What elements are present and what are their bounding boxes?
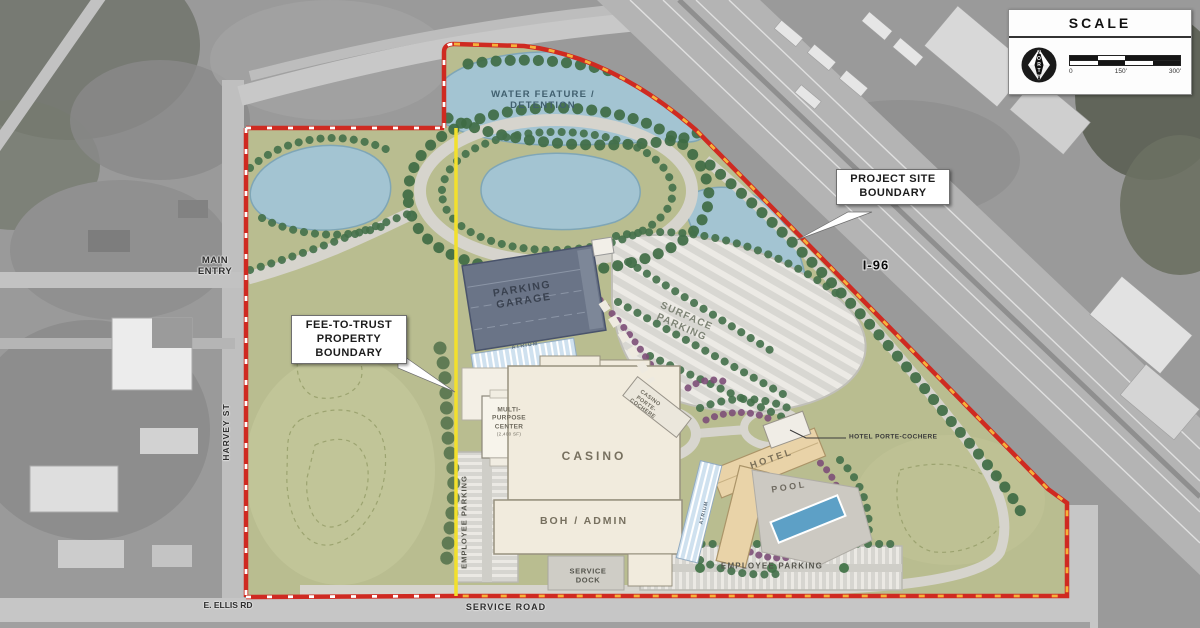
harvey-st-road	[222, 80, 244, 628]
scale-tick-0: 0	[1069, 68, 1073, 75]
scale-tick-300: 300'	[1169, 68, 1181, 75]
e-ellis-road	[0, 598, 1090, 624]
scale-panel: SCALE NORTH 0 150' 300'	[1008, 9, 1192, 95]
north-arrow-icon: NORTH	[1019, 45, 1059, 85]
site-plan-screenshot: SCALE NORTH 0 150' 300' PROJ	[0, 0, 1200, 628]
scale-tick-150: 150'	[1115, 68, 1127, 75]
scale-bar: 0 150' 300'	[1069, 55, 1181, 75]
main-entry-road	[0, 272, 246, 288]
middle-pond	[481, 153, 640, 229]
north-label: NORTH	[1036, 50, 1042, 80]
scale-title: SCALE	[1009, 10, 1191, 38]
